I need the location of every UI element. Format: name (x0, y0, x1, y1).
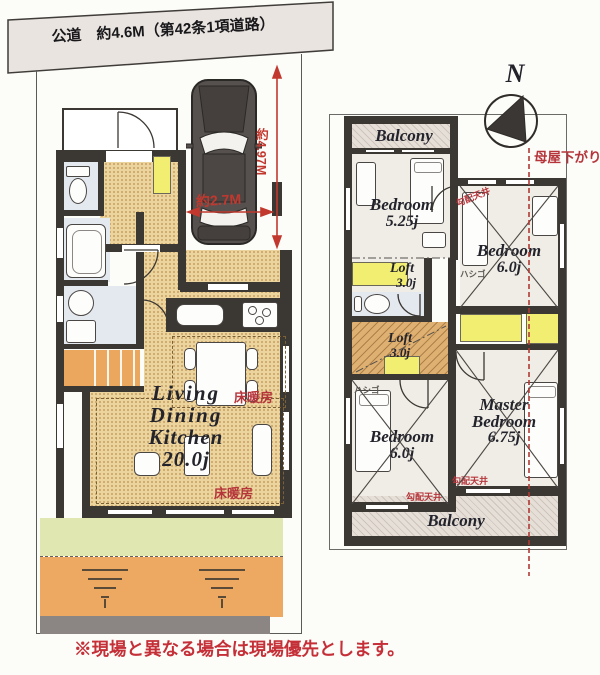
lot-boundary-left (36, 70, 37, 634)
sloped-ceiling-label: 勾配天井 (452, 474, 488, 487)
floor-heating-label: 床暖房 (214, 483, 253, 502)
shoe-closet (153, 156, 171, 194)
window (108, 509, 152, 515)
bedroom-label: Bedroom (352, 196, 452, 214)
wall-east-upper (178, 150, 186, 290)
window (506, 179, 534, 185)
wall-2f (448, 306, 566, 314)
loft-size: 3.0j (368, 346, 432, 360)
garden-soil (40, 557, 283, 617)
window (366, 149, 394, 153)
ldk-floor-kitchen-strip (144, 298, 166, 334)
wall-stub-parking (272, 182, 282, 216)
door-opening (122, 245, 160, 252)
window (56, 404, 64, 448)
garden-curb (40, 616, 270, 634)
sloped-ceiling-label: 勾配天井 (406, 490, 442, 503)
ldk-label-dining: Dining (126, 404, 246, 426)
window (468, 179, 496, 185)
balcony-label: Balcony (406, 512, 506, 530)
compass (480, 88, 550, 152)
ladder-label: ハシゴ (460, 268, 486, 280)
wall-2f-south (344, 536, 566, 546)
washbasin-icon (68, 290, 94, 316)
compass-north-label: N (500, 60, 530, 87)
window (56, 228, 64, 258)
floor-heating-label: 床暖房 (234, 387, 273, 406)
window (559, 224, 565, 268)
burner-icon (262, 308, 271, 317)
wall-2f (352, 316, 430, 322)
dim-depth-label: 約4.97M (252, 128, 271, 175)
wall (56, 210, 104, 216)
wall (56, 344, 144, 349)
bedroom-size: 6.0j (354, 446, 450, 463)
dresser-icon (422, 232, 446, 248)
toilet-icon-1f (66, 166, 90, 177)
loft-size: 3.0j (376, 276, 436, 290)
wall-west (56, 150, 64, 520)
sofa-icon (252, 424, 272, 476)
window (559, 408, 565, 464)
wall (56, 280, 108, 286)
toilet-bowl-icon-2f (364, 294, 390, 314)
window (56, 296, 64, 322)
window (345, 188, 351, 230)
wall (98, 156, 104, 212)
closet-master-left (460, 314, 522, 342)
bedroom-label: Bedroom (459, 242, 559, 260)
ldk-label-size: 20.0j (126, 448, 246, 470)
closet-master-right (526, 312, 560, 344)
window (166, 509, 224, 515)
wall-2f (448, 344, 566, 350)
floorplan-canvas: 公道 約4.6M（第42条1項道路） (0, 0, 600, 675)
desk-icon (532, 196, 558, 236)
car-icon (186, 76, 262, 248)
disclaimer-text: ※現場と異なる場合は現場優先とします。 (74, 636, 405, 661)
lot-boundary-right (301, 54, 302, 634)
bathtub-inner (72, 230, 102, 274)
dim-width-label: 約2.7M (196, 189, 242, 211)
window (232, 509, 274, 515)
washing-machine-icon (66, 320, 96, 343)
window (402, 149, 434, 153)
bedroom-label: Bedroom (354, 428, 450, 446)
burner-icon (255, 316, 264, 325)
window (466, 488, 510, 494)
toilet-bowl-icon-1f (69, 178, 87, 204)
wall (136, 212, 144, 348)
chair-icon (246, 348, 258, 370)
bedroom-size: 5.25j (352, 214, 452, 231)
balcony-label: Balcony (354, 127, 454, 145)
ladder-label: ハシゴ (354, 384, 380, 396)
entrance-porch (62, 108, 178, 152)
wall-2f (352, 374, 456, 380)
kitchen-sink-icon (176, 304, 224, 326)
ldk-label-kitchen: Kitchen (126, 426, 246, 448)
stairs-1f-steps (94, 350, 140, 386)
master-size: 6.75j (452, 430, 556, 447)
garden-lawn (40, 518, 283, 556)
wall-2f (344, 116, 458, 124)
chair-icon (184, 348, 196, 370)
wall-2f-west (344, 116, 352, 546)
window (208, 283, 248, 291)
wall (82, 392, 90, 518)
pillow-icon (414, 162, 442, 173)
window (345, 398, 351, 444)
toilet-icon-2f (354, 296, 362, 312)
window (366, 504, 408, 510)
wall-2f (448, 258, 456, 510)
ldk-label-living: Living (126, 382, 246, 404)
entrance-door-opening (106, 151, 152, 162)
burner-icon (248, 306, 257, 315)
